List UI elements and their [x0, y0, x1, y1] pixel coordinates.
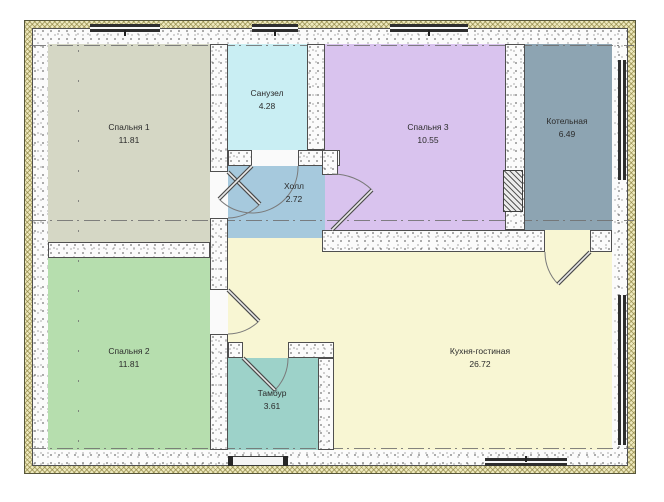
- room-name: Тамбур: [258, 387, 287, 400]
- room-hall: [228, 166, 330, 238]
- window-tick: [525, 456, 527, 462]
- interior-wall: [590, 230, 612, 252]
- room-label-kitchen-living: Кухня-гостиная 26.72: [450, 345, 510, 371]
- axis-line: [30, 220, 634, 221]
- room-label-bedroom-1: Спальня 1 11.81: [108, 121, 149, 147]
- interior-wall: [48, 242, 210, 258]
- room-name: Холл: [284, 180, 304, 193]
- room-label-bedroom-2: Спальня 2 11.81: [108, 345, 149, 371]
- axis-line: [30, 45, 634, 46]
- room-area: 4.28: [250, 100, 283, 113]
- interior-wall: [322, 150, 338, 175]
- interior-wall: [228, 342, 243, 358]
- window-tick: [274, 30, 276, 36]
- window: [618, 295, 626, 445]
- room-name: Котельная: [546, 115, 587, 128]
- room-name: Санузел: [250, 87, 283, 100]
- room-label-boiler: Котельная 6.49: [546, 115, 587, 141]
- room-area: 2.72: [284, 193, 304, 206]
- entrance-door-threshold: [228, 456, 288, 466]
- interior-wall: [288, 342, 334, 358]
- interior-wall: [322, 230, 545, 252]
- flue-shaft: [503, 170, 523, 212]
- room-label-tambour: Тамбур 3.61: [258, 387, 287, 413]
- room-label-bedroom-3: Спальня 3 10.55: [407, 121, 448, 147]
- window-tick: [124, 30, 126, 36]
- room-name: Кухня-гостиная: [450, 345, 510, 358]
- interior-wall: [307, 44, 325, 150]
- room-name: Спальня 2: [108, 345, 149, 358]
- room-area: 10.55: [407, 134, 448, 147]
- room-area: 11.81: [108, 134, 149, 147]
- interior-wall: [318, 358, 334, 450]
- room-area: 11.81: [108, 358, 149, 371]
- room-label-hall: Холл 2.72: [284, 180, 304, 206]
- room-area: 3.61: [258, 400, 287, 413]
- interior-wall: [210, 44, 228, 172]
- room-area: 26.72: [450, 358, 510, 371]
- interior-wall: [228, 150, 252, 166]
- window: [618, 60, 626, 180]
- window-tick: [428, 30, 430, 36]
- room-area: 6.49: [546, 128, 587, 141]
- floor-plan: Спальня 1 11.81 Санузел 4.28 Спальня 3 1…: [0, 0, 664, 502]
- room-name: Спальня 3: [407, 121, 448, 134]
- room-name: Спальня 1: [108, 121, 149, 134]
- interior-wall: [210, 334, 228, 450]
- interior-wall: [210, 218, 228, 290]
- room-label-bathroom: Санузел 4.28: [250, 87, 283, 113]
